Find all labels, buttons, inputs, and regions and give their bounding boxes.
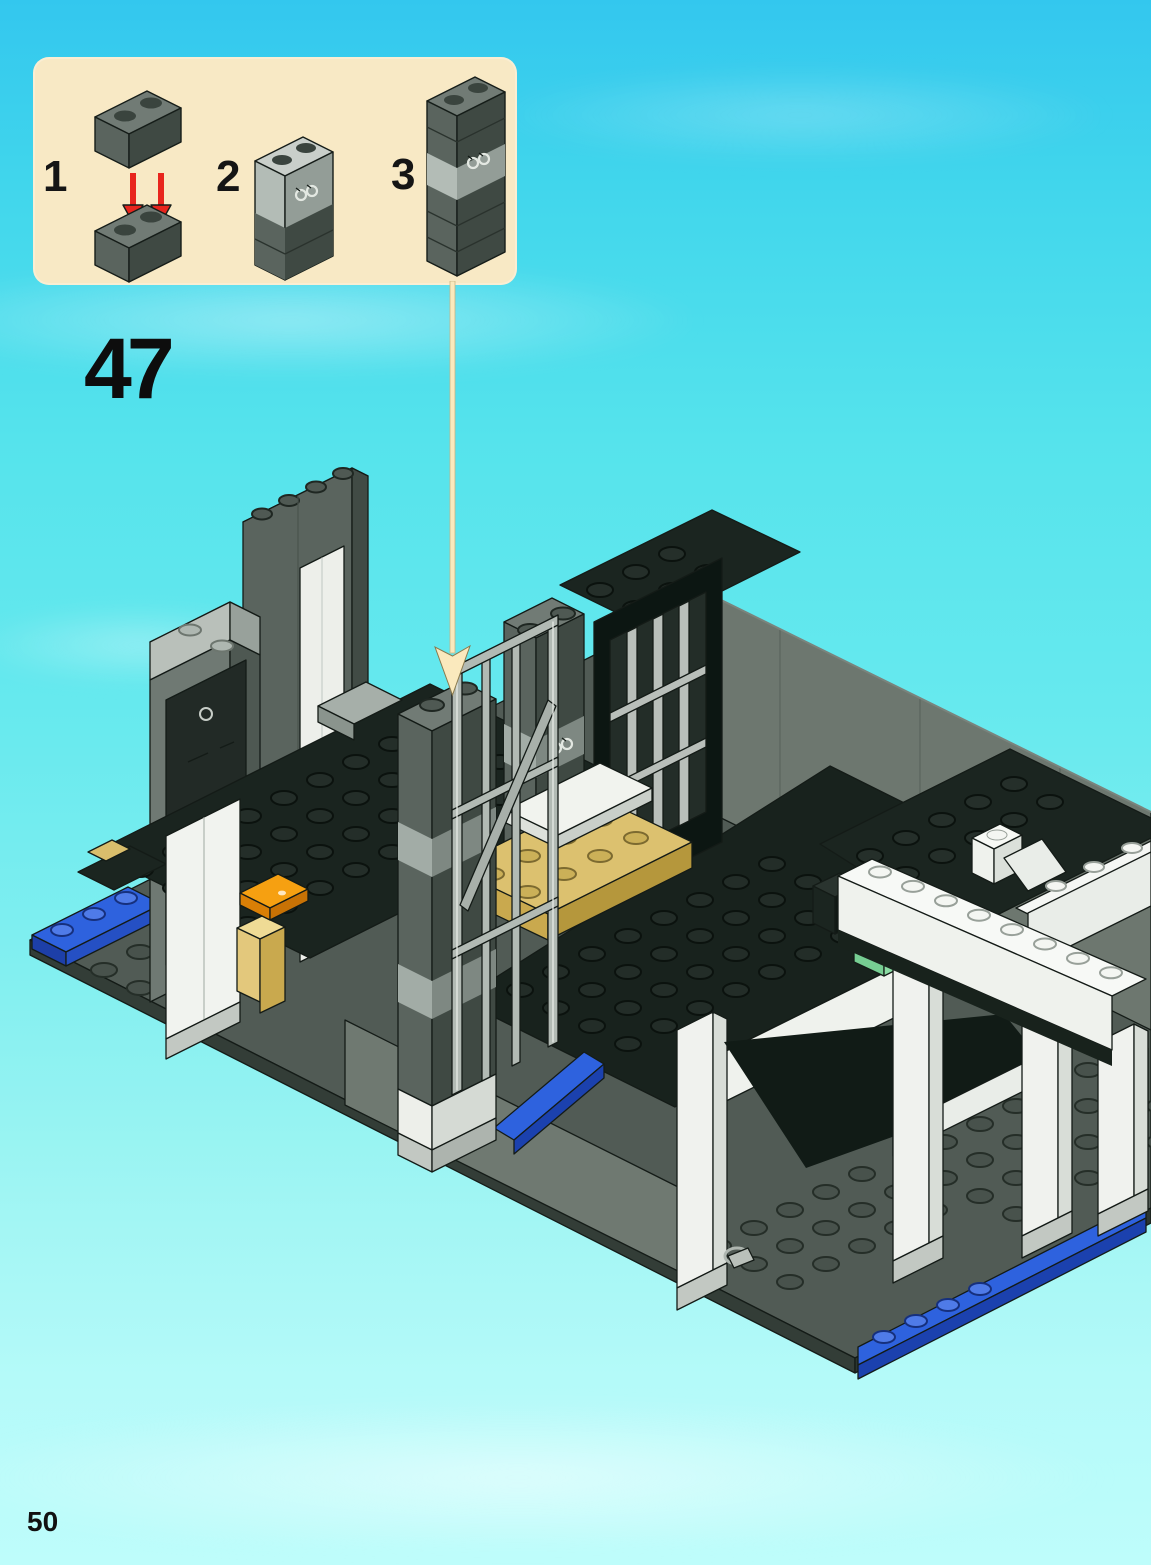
stud — [1075, 1171, 1101, 1185]
stud — [893, 831, 919, 845]
stud — [271, 791, 297, 805]
stud — [651, 911, 677, 925]
stud — [849, 1239, 875, 1253]
stud — [252, 509, 272, 520]
stud — [1034, 939, 1056, 950]
stud — [615, 965, 641, 979]
stud — [579, 1019, 605, 1033]
stud — [795, 947, 821, 961]
stud — [1084, 862, 1104, 872]
stud — [624, 832, 648, 844]
stud — [279, 495, 299, 506]
stud — [615, 1037, 641, 1051]
stud — [968, 910, 990, 921]
white-pillar-front — [677, 1012, 727, 1310]
stud — [615, 929, 641, 943]
stud — [127, 945, 153, 959]
stud — [759, 929, 785, 943]
stud — [929, 849, 955, 863]
stud — [1122, 843, 1142, 853]
stud — [849, 1203, 875, 1217]
stud — [777, 1203, 803, 1217]
stud — [813, 1185, 839, 1199]
stud — [307, 881, 333, 895]
stud — [1046, 881, 1066, 891]
stud — [687, 929, 713, 943]
stud — [777, 1275, 803, 1289]
stud — [307, 845, 333, 859]
stud — [902, 881, 924, 892]
stud — [91, 963, 117, 977]
stud — [1075, 1063, 1101, 1077]
stud — [211, 641, 233, 652]
stud — [579, 983, 605, 997]
stud — [587, 583, 613, 597]
stud — [849, 1167, 875, 1181]
substep-3-label: 3 — [391, 153, 415, 197]
stud — [813, 1221, 839, 1235]
stud — [759, 893, 785, 907]
stud — [967, 1189, 993, 1203]
stud — [935, 895, 957, 906]
stud — [343, 827, 369, 841]
stud — [615, 1001, 641, 1015]
stud — [687, 965, 713, 979]
stud — [965, 795, 991, 809]
stud — [777, 1239, 803, 1253]
stud — [333, 468, 353, 479]
step-number: 47 — [84, 326, 170, 412]
stud — [759, 965, 785, 979]
stud — [873, 1331, 895, 1343]
substep-1-label: 1 — [43, 155, 67, 199]
lego-model-illustration — [0, 430, 1151, 1565]
stud — [969, 1283, 991, 1295]
stud — [271, 827, 297, 841]
stud — [579, 947, 605, 961]
stud — [813, 1257, 839, 1271]
page-number: 50 — [27, 1508, 58, 1536]
stud — [929, 813, 955, 827]
stud — [306, 482, 326, 493]
stud — [759, 857, 785, 871]
handcuff-brick-stack-tall-icon — [421, 71, 516, 306]
stud — [1100, 967, 1122, 978]
sky-streak — [420, 60, 1151, 170]
stud — [343, 863, 369, 877]
white-pillars-left — [166, 799, 240, 1059]
stud — [651, 1019, 677, 1033]
stud — [869, 867, 891, 878]
stud — [1037, 795, 1063, 809]
stud — [905, 1315, 927, 1327]
callout-pointer-arrow-icon — [418, 281, 488, 703]
stud — [723, 947, 749, 961]
stud — [651, 947, 677, 961]
stud — [687, 1001, 713, 1015]
stud — [1075, 1099, 1101, 1113]
stud — [967, 1117, 993, 1131]
stud — [83, 908, 105, 920]
stud — [967, 1153, 993, 1167]
stud — [723, 911, 749, 925]
stud — [343, 755, 369, 769]
stud — [1001, 813, 1027, 827]
target-column — [398, 682, 496, 1172]
stud — [723, 875, 749, 889]
stud — [723, 983, 749, 997]
handcuff-brick-stack-short-icon — [249, 133, 344, 285]
stud — [623, 565, 649, 579]
stud — [127, 981, 153, 995]
stud — [115, 892, 137, 904]
stud — [1001, 777, 1027, 791]
stud — [51, 924, 73, 936]
stud — [1075, 1135, 1101, 1149]
stud — [659, 547, 685, 561]
stud — [588, 850, 612, 862]
stud — [179, 625, 201, 636]
stud — [1001, 924, 1023, 935]
stud — [937, 1299, 959, 1311]
stud — [687, 893, 713, 907]
instruction-page: 1 2 3 — [0, 0, 1151, 1565]
dark-brick-pair-insert-icon — [73, 83, 238, 283]
stud — [307, 773, 333, 787]
stud — [343, 791, 369, 805]
stud — [307, 809, 333, 823]
substep-callout-box: 1 2 3 — [33, 57, 517, 285]
stud — [741, 1221, 767, 1235]
stud — [1067, 953, 1089, 964]
stud — [651, 983, 677, 997]
